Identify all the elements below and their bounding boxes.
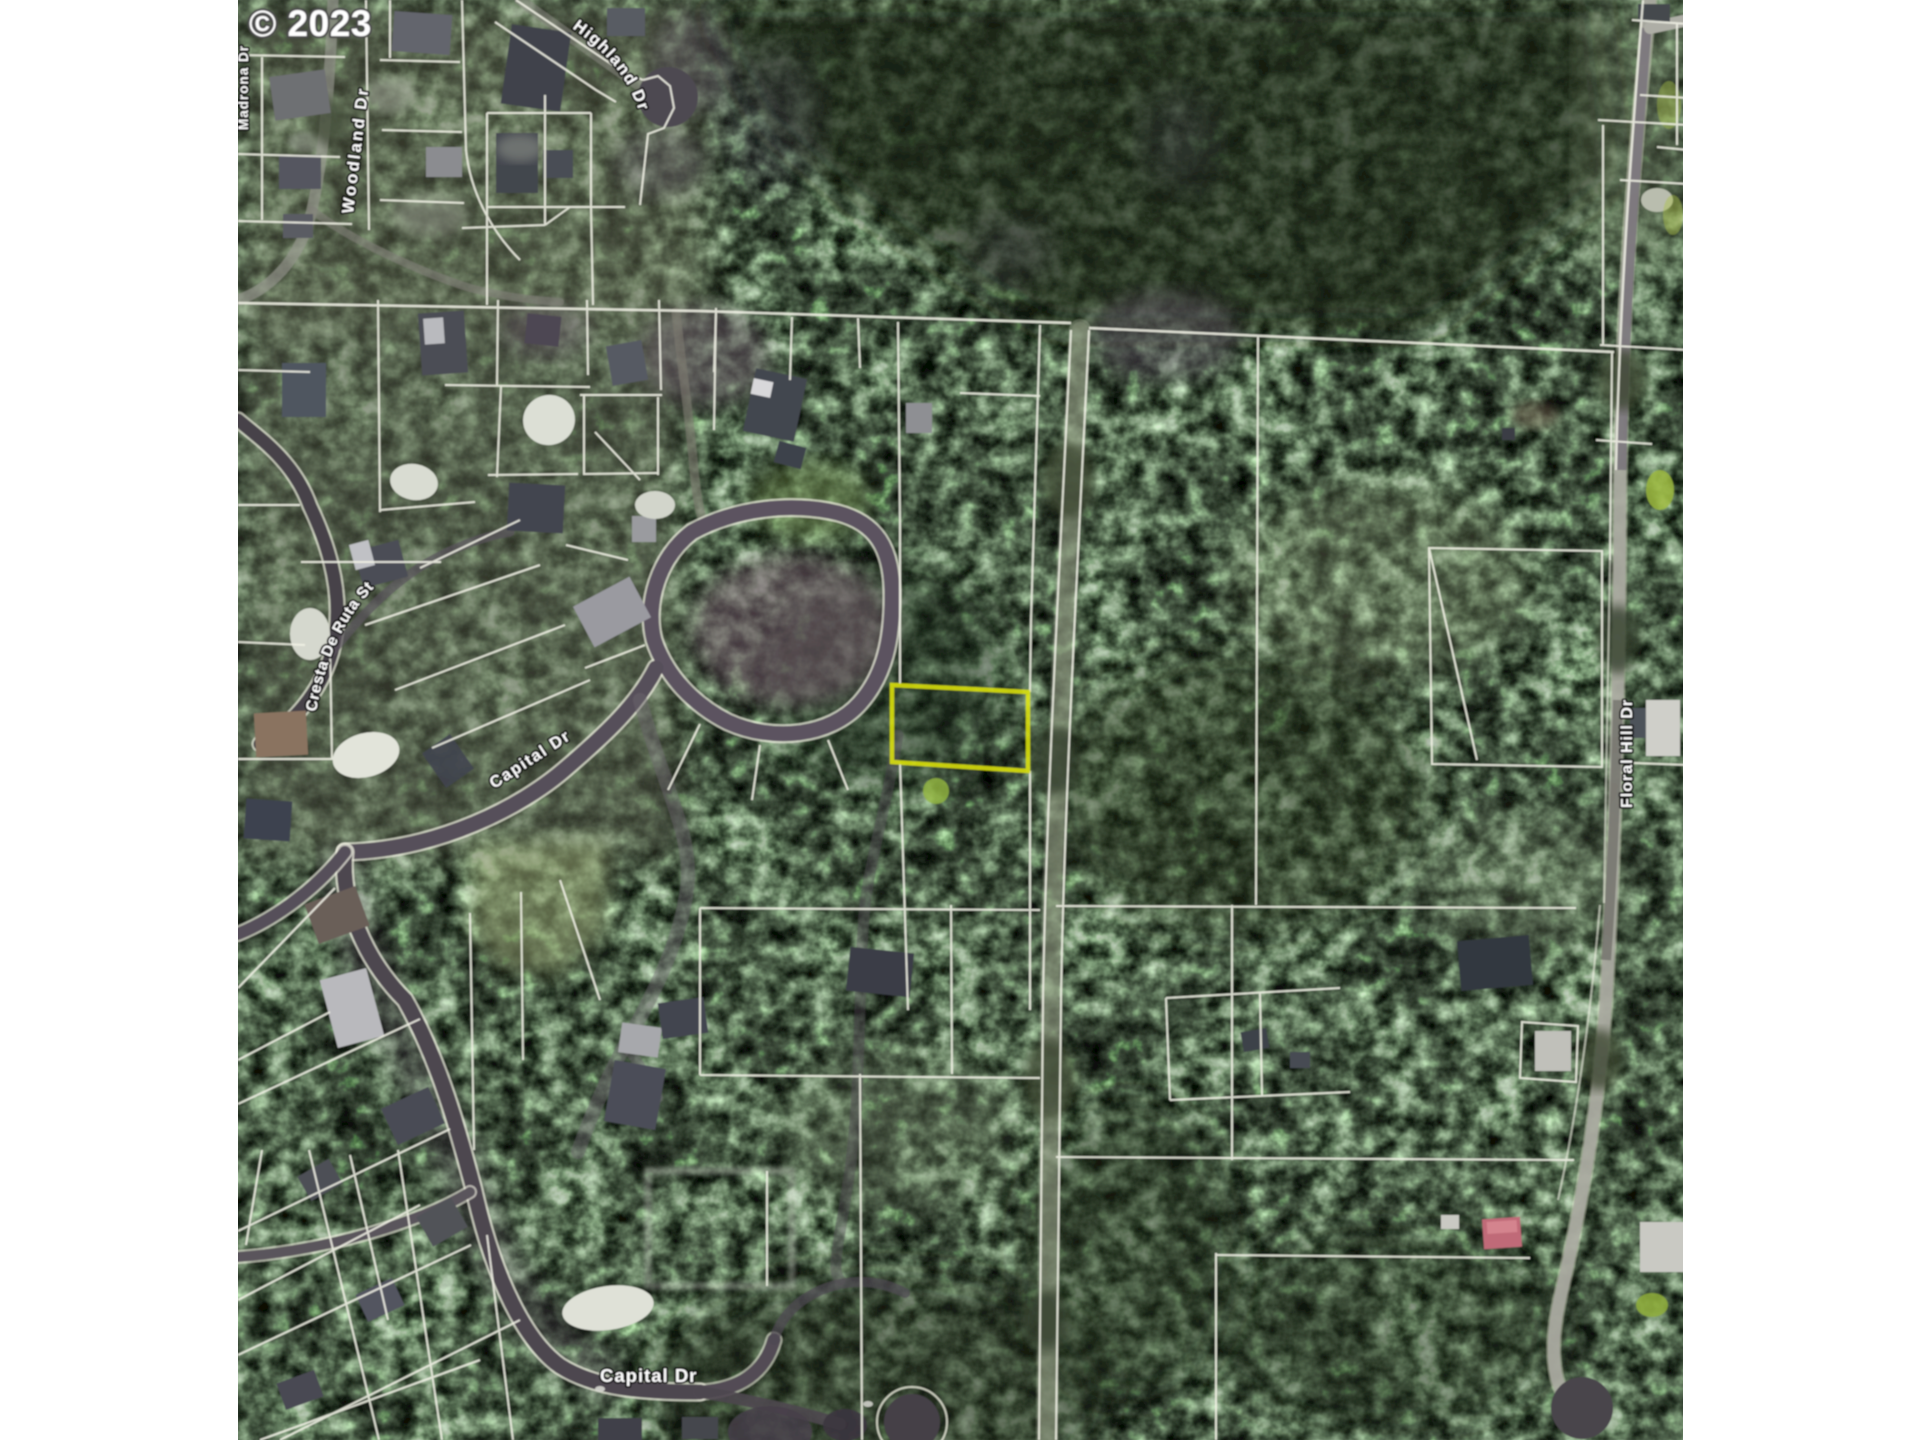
svg-text:Madrona Dr: Madrona Dr bbox=[236, 45, 251, 130]
svg-text:Capital Dr: Capital Dr bbox=[600, 1365, 697, 1386]
svg-text:Floral Hill Dr: Floral Hill Dr bbox=[1619, 699, 1636, 808]
svg-text:© 2023: © 2023 bbox=[249, 3, 372, 44]
